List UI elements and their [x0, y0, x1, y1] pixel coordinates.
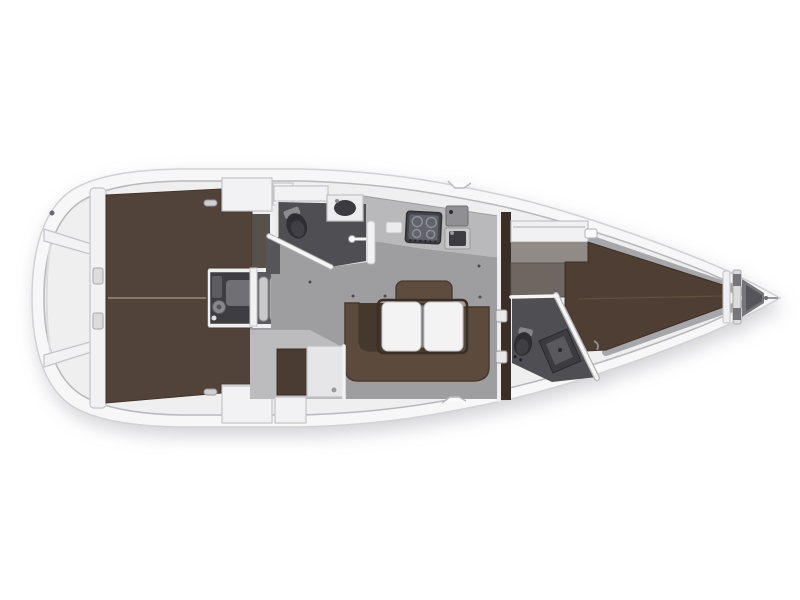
aft-head-shower-mixer [349, 236, 356, 243]
galley-stove [405, 211, 442, 244]
door-hinge-top [496, 310, 507, 322]
aft-locker-top [222, 178, 272, 211]
stern-fitting [50, 211, 55, 216]
galley-faucet [450, 231, 454, 235]
nav-cabinet [275, 397, 306, 423]
bow-strip-vent-top [733, 274, 741, 286]
transom-latch-bottom [93, 313, 103, 329]
bow-fitting [764, 296, 768, 300]
forward-head-wall-top [511, 296, 557, 297]
berth-handle-bottom [204, 389, 217, 395]
aft-head-wall-right [367, 221, 375, 264]
engine-cap [212, 316, 217, 321]
bow-strip-vent-bottom [733, 308, 741, 320]
nav-table [307, 346, 343, 397]
galley-counter-item [386, 222, 402, 233]
forward-wall-strip [511, 242, 588, 263]
forward-shelf-latch [585, 229, 597, 238]
yacht-floorplan [0, 0, 800, 600]
table-leaf-left [382, 302, 421, 351]
engine-part [212, 276, 222, 298]
yacht-floorplan-canvas [0, 0, 800, 600]
forward-shelf [511, 221, 588, 242]
table-leaf-right [424, 302, 463, 351]
aft-head-faucet [335, 199, 339, 203]
hull [32, 169, 780, 427]
engine-block [226, 280, 252, 306]
forward-wardrobe [511, 263, 565, 297]
transom-latch-top [93, 268, 103, 284]
forward-bulkhead [496, 212, 511, 400]
door-hinge-bottom [496, 351, 507, 363]
galley-fridge-latch [449, 210, 453, 214]
bulkhead-door-band [501, 212, 511, 400]
galley-fridge [446, 206, 468, 226]
berth-handle-top [204, 200, 217, 206]
nav-seat [277, 349, 307, 395]
engine-pulley-hub [217, 305, 222, 310]
bow-bulkhead [723, 271, 730, 323]
aft-head-cabinet [274, 186, 328, 201]
nav-table-handle [332, 388, 337, 393]
forward-head-faucet [558, 348, 562, 352]
companionway-wall-left [250, 268, 257, 326]
transom-bulkhead [90, 188, 106, 408]
